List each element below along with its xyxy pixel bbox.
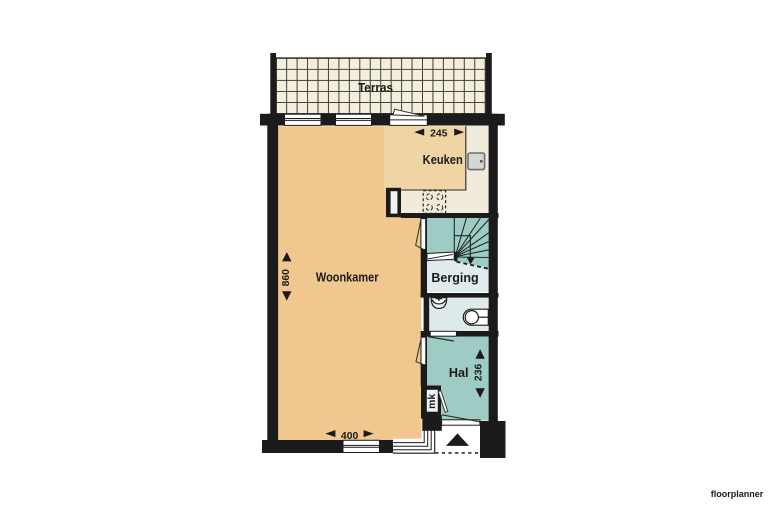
svg-text:Hal: Hal [449,365,469,380]
svg-text:floorplanner: floorplanner [711,489,764,499]
svg-text:mk: mk [427,394,438,409]
svg-text:Berging: Berging [431,271,478,285]
svg-text:860: 860 [281,269,292,287]
svg-text:Keuken: Keuken [423,152,463,167]
svg-text:245: 245 [430,129,448,140]
svg-text:236: 236 [474,364,485,382]
svg-text:400: 400 [341,431,359,442]
svg-text:Woonkamer: Woonkamer [316,270,379,285]
svg-text:Terras: Terras [358,80,393,95]
